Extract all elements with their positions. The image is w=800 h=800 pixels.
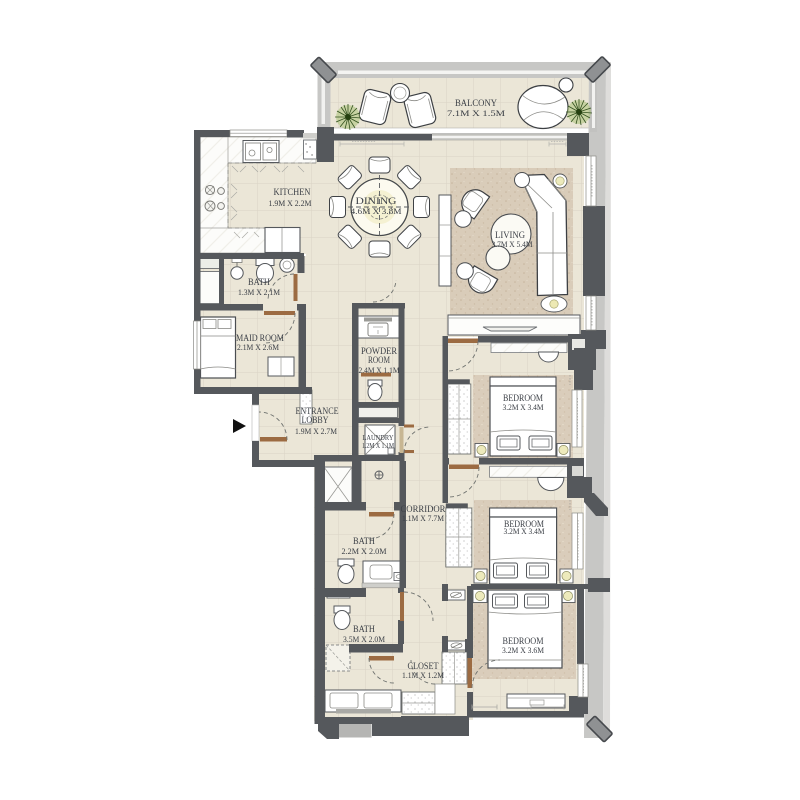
svg-text:1.1M X 7.7M: 1.1M X 7.7M	[402, 514, 445, 523]
svg-text:4.6M X 3.8M: 4.6M X 3.8M	[351, 207, 403, 216]
svg-text:CLOSET: CLOSET	[408, 661, 439, 671]
svg-text:BALCONY: BALCONY	[455, 98, 497, 108]
svg-text:BATH: BATH	[353, 536, 375, 546]
svg-text:BEDROOM: BEDROOM	[503, 636, 544, 646]
svg-text:1.9M X 2.7M: 1.9M X 2.7M	[295, 427, 338, 436]
svg-text:BATH: BATH	[248, 277, 270, 287]
svg-text:BEDROOM: BEDROOM	[503, 393, 543, 403]
svg-text:1.9M X 2.2M: 1.9M X 2.2M	[269, 199, 313, 208]
svg-text:1.3M X 2.1M: 1.3M X 2.1M	[238, 288, 281, 297]
svg-text:3.7M X 5.4M: 3.7M X 5.4M	[492, 240, 534, 249]
svg-text:LOBBY: LOBBY	[302, 415, 329, 425]
svg-text:3.5M X 2.0M: 3.5M X 2.0M	[343, 635, 386, 644]
svg-text:BATH: BATH	[353, 624, 375, 634]
svg-text:2.1M X 2.6M: 2.1M X 2.6M	[237, 343, 280, 352]
svg-text:1.1M X 1.2M: 1.1M X 1.2M	[402, 671, 445, 680]
svg-text:2.2M X 2.0M: 2.2M X 2.0M	[342, 547, 388, 556]
svg-text:2.4M X 1.1M: 2.4M X 1.1M	[359, 366, 401, 375]
svg-text:3.2M X 3.4M: 3.2M X 3.4M	[504, 527, 546, 536]
svg-text:3.2M X 3.4M: 3.2M X 3.4M	[503, 403, 545, 412]
svg-text:CORRIDOR: CORRIDOR	[401, 504, 446, 514]
svg-text:DINING: DINING	[356, 196, 398, 206]
svg-text:1.2M X 1.1M: 1.2M X 1.1M	[362, 441, 394, 450]
svg-text:LIVING: LIVING	[495, 230, 525, 240]
svg-text:3.2M X 3.6M: 3.2M X 3.6M	[502, 646, 545, 655]
svg-text:KITCHEN: KITCHEN	[274, 187, 311, 197]
svg-text:7.1M X 1.5M: 7.1M X 1.5M	[447, 109, 506, 118]
svg-text:MAID ROOM: MAID ROOM	[236, 333, 284, 343]
svg-text:ROOM: ROOM	[368, 355, 390, 365]
